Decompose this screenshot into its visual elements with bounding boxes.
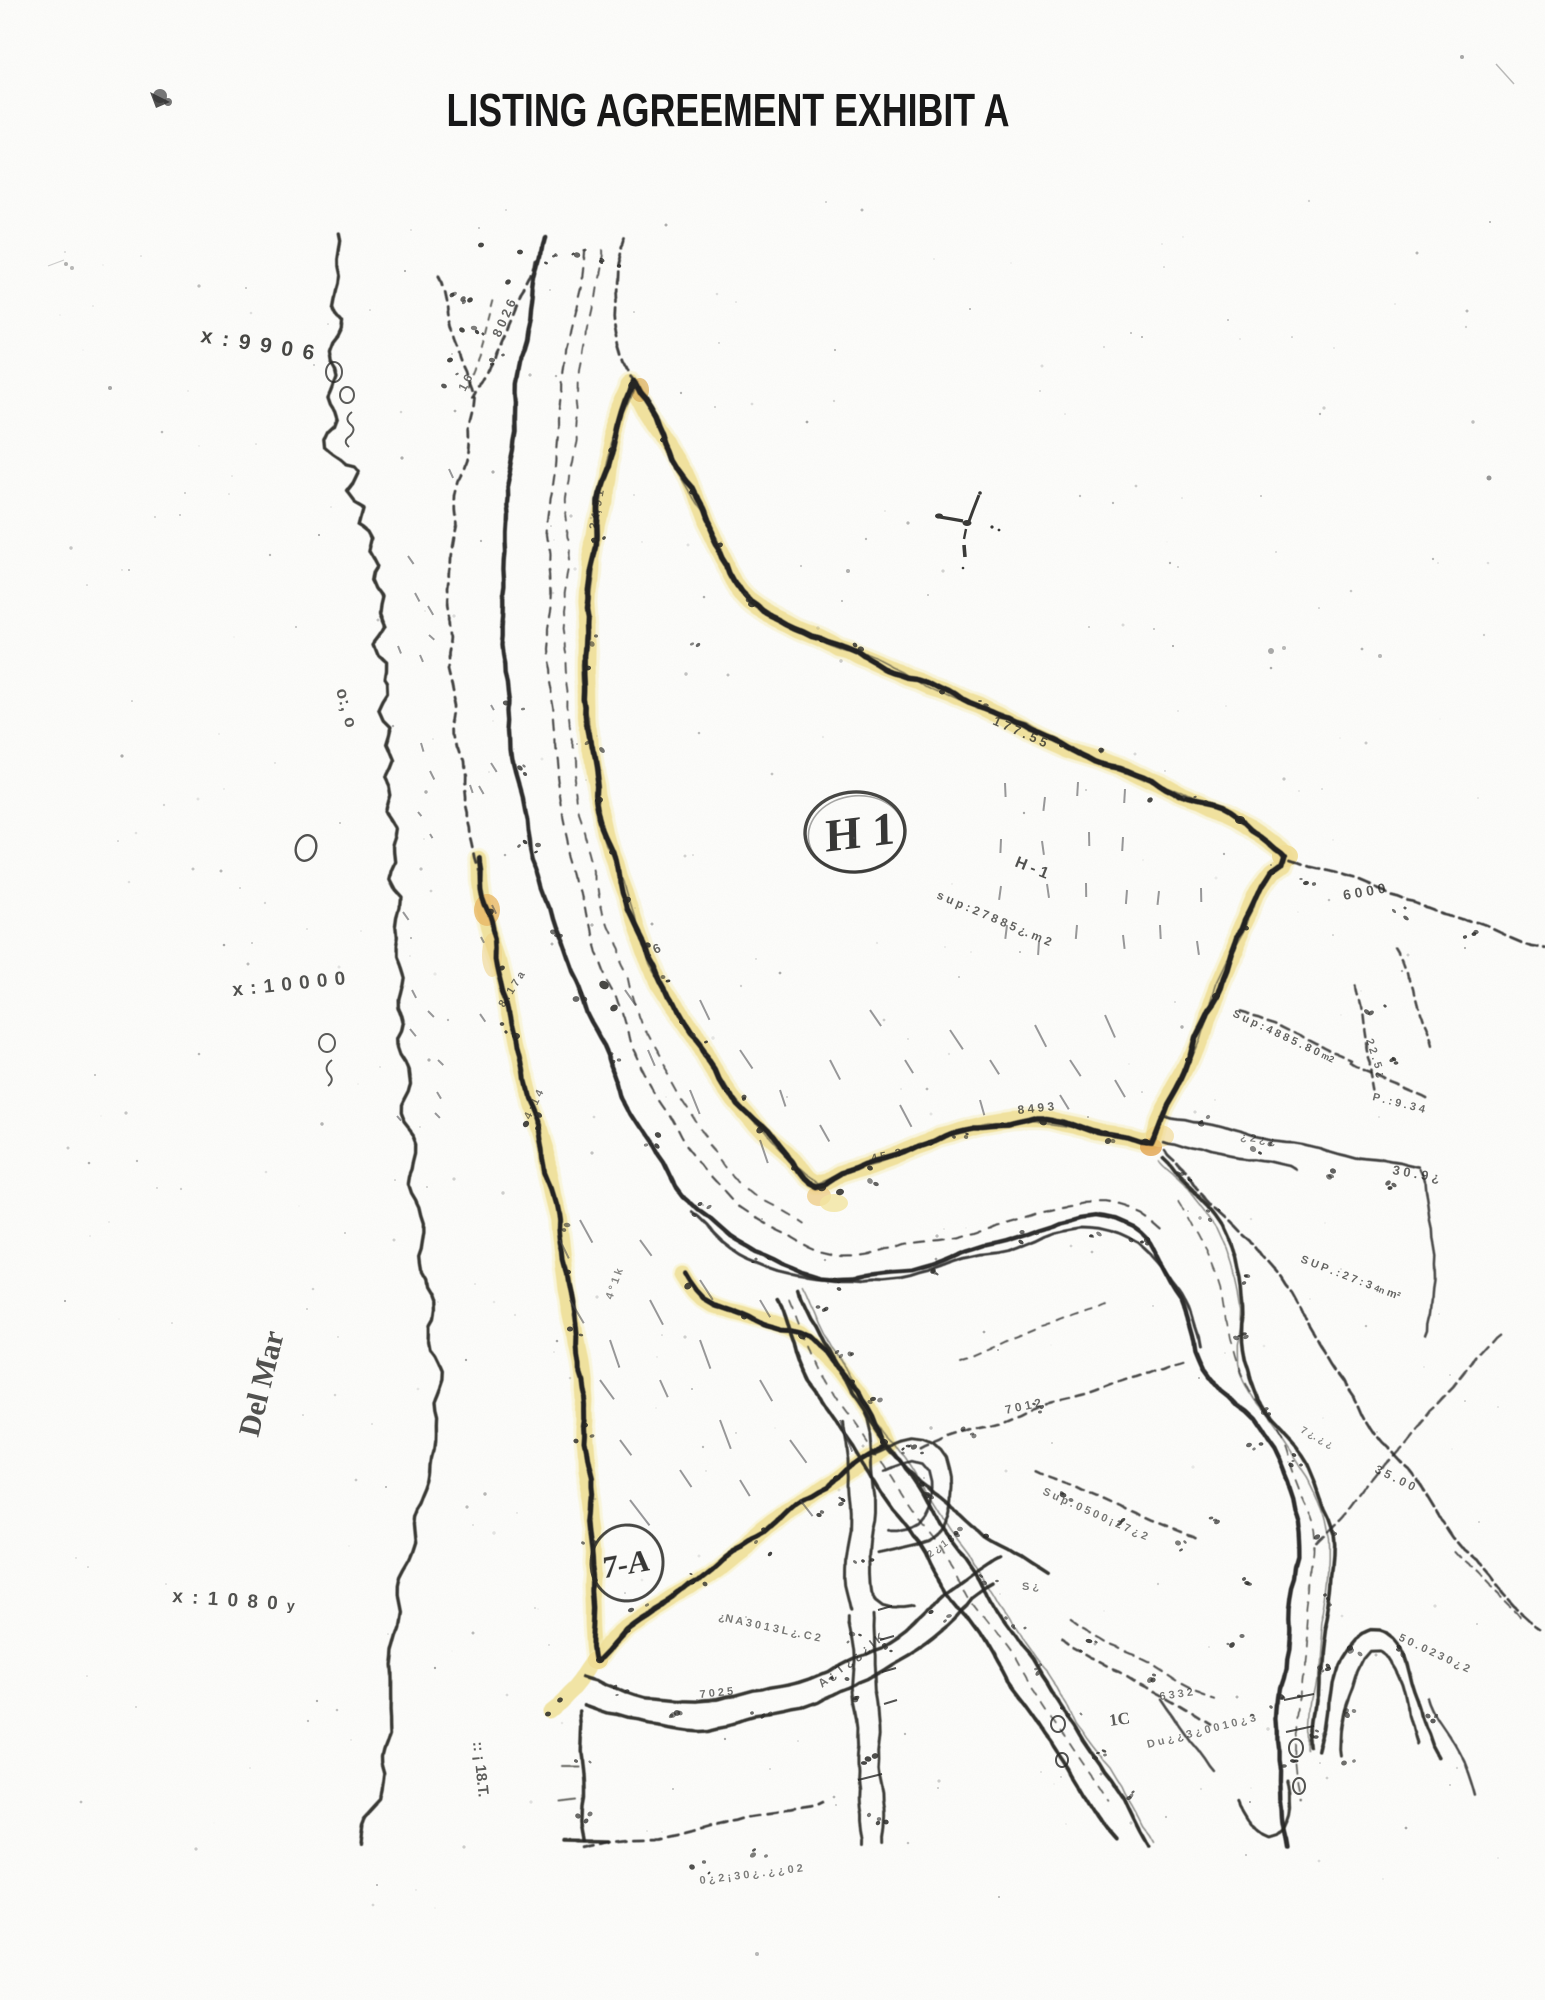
- svg-text:1C: 1C: [1108, 1708, 1131, 1730]
- svg-text:LISTING AGREEMENT EXHIBIT A: LISTING AGREEMENT EXHIBIT A: [447, 84, 1010, 136]
- svg-text:S ¿: S ¿: [1022, 1581, 1039, 1593]
- svg-text:H 1: H 1: [825, 802, 896, 862]
